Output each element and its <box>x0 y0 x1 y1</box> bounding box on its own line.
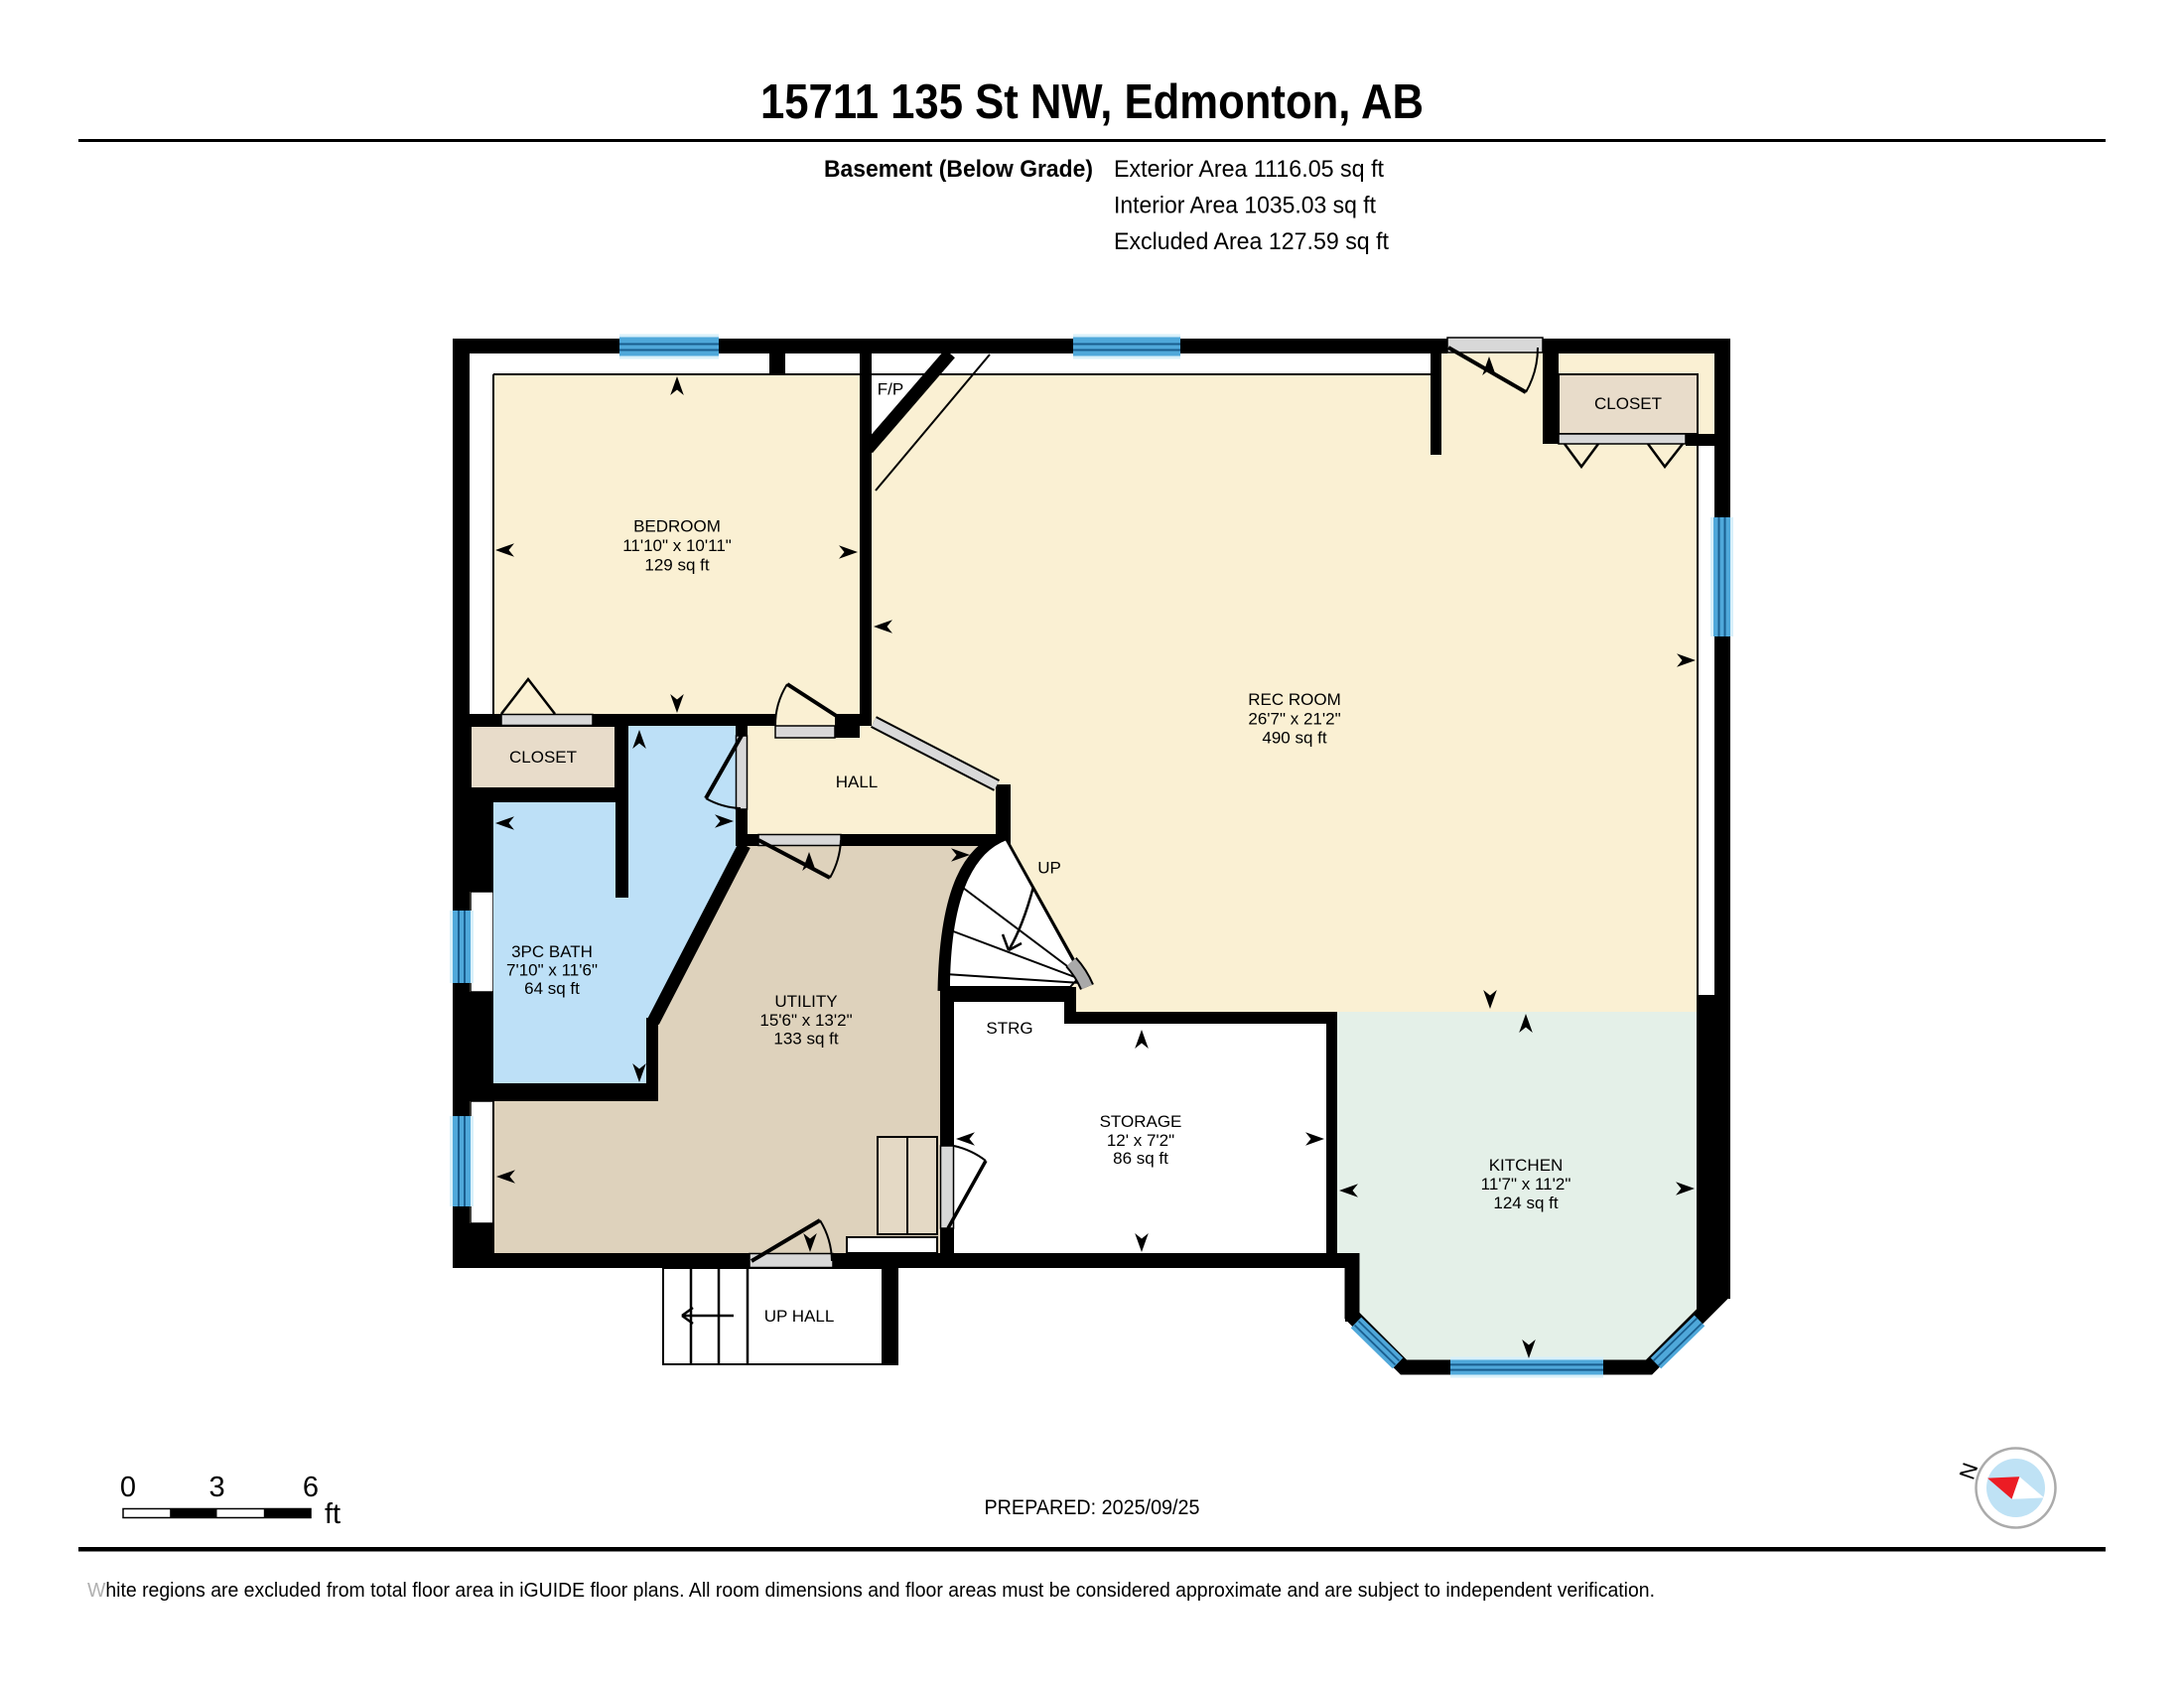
svg-text:Interior Area 1035.03 sq ft: Interior Area 1035.03 sq ft <box>1114 193 1376 219</box>
svg-text:CLOSET: CLOSET <box>509 748 577 767</box>
svg-text:STORAGE: STORAGE <box>1100 1112 1182 1131</box>
svg-text:15'6" x 13'2": 15'6" x 13'2" <box>759 1011 852 1030</box>
svg-text:7'10" x 11'6": 7'10" x 11'6" <box>506 961 598 980</box>
svg-text:Excluded Area 127.59 sq ft: Excluded Area 127.59 sq ft <box>1114 228 1389 255</box>
svg-text:11'7" x 11'2": 11'7" x 11'2" <box>1481 1175 1571 1194</box>
svg-text:UP HALL: UP HALL <box>764 1307 835 1326</box>
svg-text:UTILITY: UTILITY <box>774 992 837 1011</box>
svg-text:KITCHEN: KITCHEN <box>1489 1156 1564 1175</box>
svg-text:133 sq ft: 133 sq ft <box>773 1030 838 1049</box>
svg-text:F/P: F/P <box>878 380 903 399</box>
svg-text:BEDROOM: BEDROOM <box>633 517 721 536</box>
svg-text:26'7" x 21'2": 26'7" x 21'2" <box>1248 710 1340 729</box>
svg-text:11'10" x 10'11": 11'10" x 10'11" <box>622 536 732 555</box>
svg-text:12' x 7'2": 12' x 7'2" <box>1107 1131 1174 1150</box>
svg-text:3: 3 <box>209 1472 225 1503</box>
svg-text:HALL: HALL <box>836 773 879 791</box>
svg-text:124 sq ft: 124 sq ft <box>1493 1194 1558 1212</box>
svg-text:Exterior Area 1116.05 sq ft: Exterior Area 1116.05 sq ft <box>1114 156 1384 183</box>
svg-text:86 sq ft: 86 sq ft <box>1113 1149 1168 1168</box>
svg-text:STRG: STRG <box>986 1019 1032 1038</box>
svg-text:White regions are excluded fro: White regions are excluded from total fl… <box>87 1579 1655 1602</box>
svg-text:REC ROOM: REC ROOM <box>1248 690 1341 709</box>
svg-text:ft: ft <box>325 1498 341 1530</box>
svg-text:6: 6 <box>303 1472 319 1503</box>
svg-text:64 sq ft: 64 sq ft <box>524 979 580 998</box>
svg-text:129 sq ft: 129 sq ft <box>644 556 709 575</box>
svg-text:15711 135 St NW, Edmonton, AB: 15711 135 St NW, Edmonton, AB <box>760 75 1424 129</box>
svg-text:PREPARED: 2025/09/25: PREPARED: 2025/09/25 <box>985 1496 1200 1519</box>
svg-text:UP: UP <box>1037 859 1061 878</box>
svg-text:0: 0 <box>120 1472 136 1503</box>
svg-text:Basement (Below Grade): Basement (Below Grade) <box>824 156 1093 183</box>
svg-text:CLOSET: CLOSET <box>1594 394 1662 413</box>
svg-text:3PC BATH: 3PC BATH <box>511 942 593 961</box>
svg-text:490 sq ft: 490 sq ft <box>1262 729 1326 748</box>
